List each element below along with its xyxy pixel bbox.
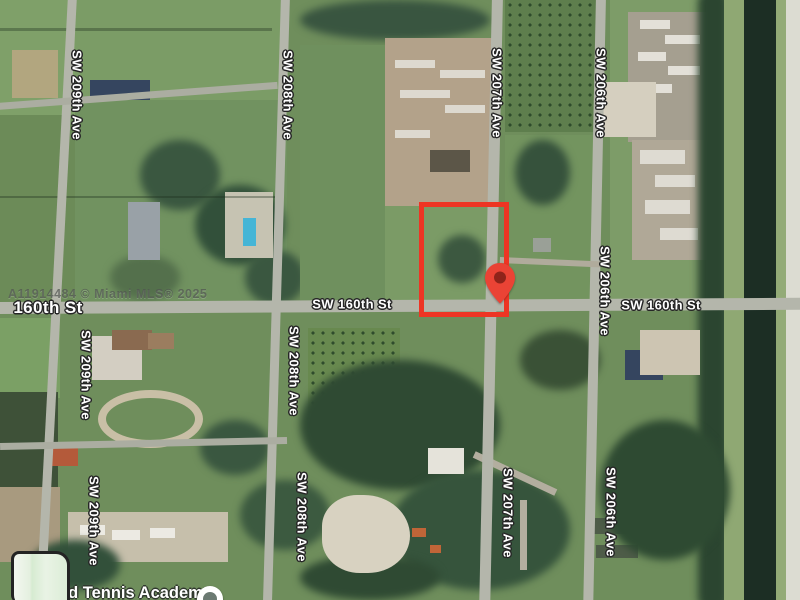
street-label-sw-206th-ave-top: SW 206th Ave	[594, 48, 609, 138]
street-label-sw-160th-st-center: SW 160th St	[312, 297, 392, 312]
pin-hole	[494, 272, 506, 284]
street-label-160th-st-left: 160th St	[13, 298, 82, 318]
location-pin-icon[interactable]	[482, 261, 518, 305]
map[interactable]: SW 209th AveSW 208th AveSW 207th AveSW 2…	[0, 0, 800, 600]
street-label-sw-207th-ave-bottom: SW 207th Ave	[501, 468, 516, 558]
street-label-sw-208th-ave-mid: SW 208th Ave	[287, 326, 302, 416]
mls-watermark: A11914484 © Miami MLS® 2025	[8, 287, 207, 301]
street-label-sw-209th-ave-mid: SW 209th Ave	[79, 330, 94, 420]
street-label-sw-208th-ave-top: SW 208th Ave	[281, 50, 296, 140]
street-label-sw-206th-ave-mid: SW 206th Ave	[598, 246, 613, 336]
street-label-sw-209th-ave-top: SW 209th Ave	[70, 50, 85, 140]
street-label-sw-209th-ave-bottom: SW 209th Ave	[87, 476, 102, 566]
street-label-sw-160th-st-right: SW 160th St	[621, 298, 701, 313]
street-label-sw-208th-ave-bottom: SW 208th Ave	[295, 472, 310, 562]
street-label-sw-207th-ave-top: SW 207th Ave	[490, 48, 505, 138]
poi-label: nd Tennis Academy	[58, 584, 212, 600]
street-label-sw-206th-ave-bottom: SW 206th Ave	[604, 467, 619, 557]
inset-overview-map[interactable]	[11, 551, 70, 600]
